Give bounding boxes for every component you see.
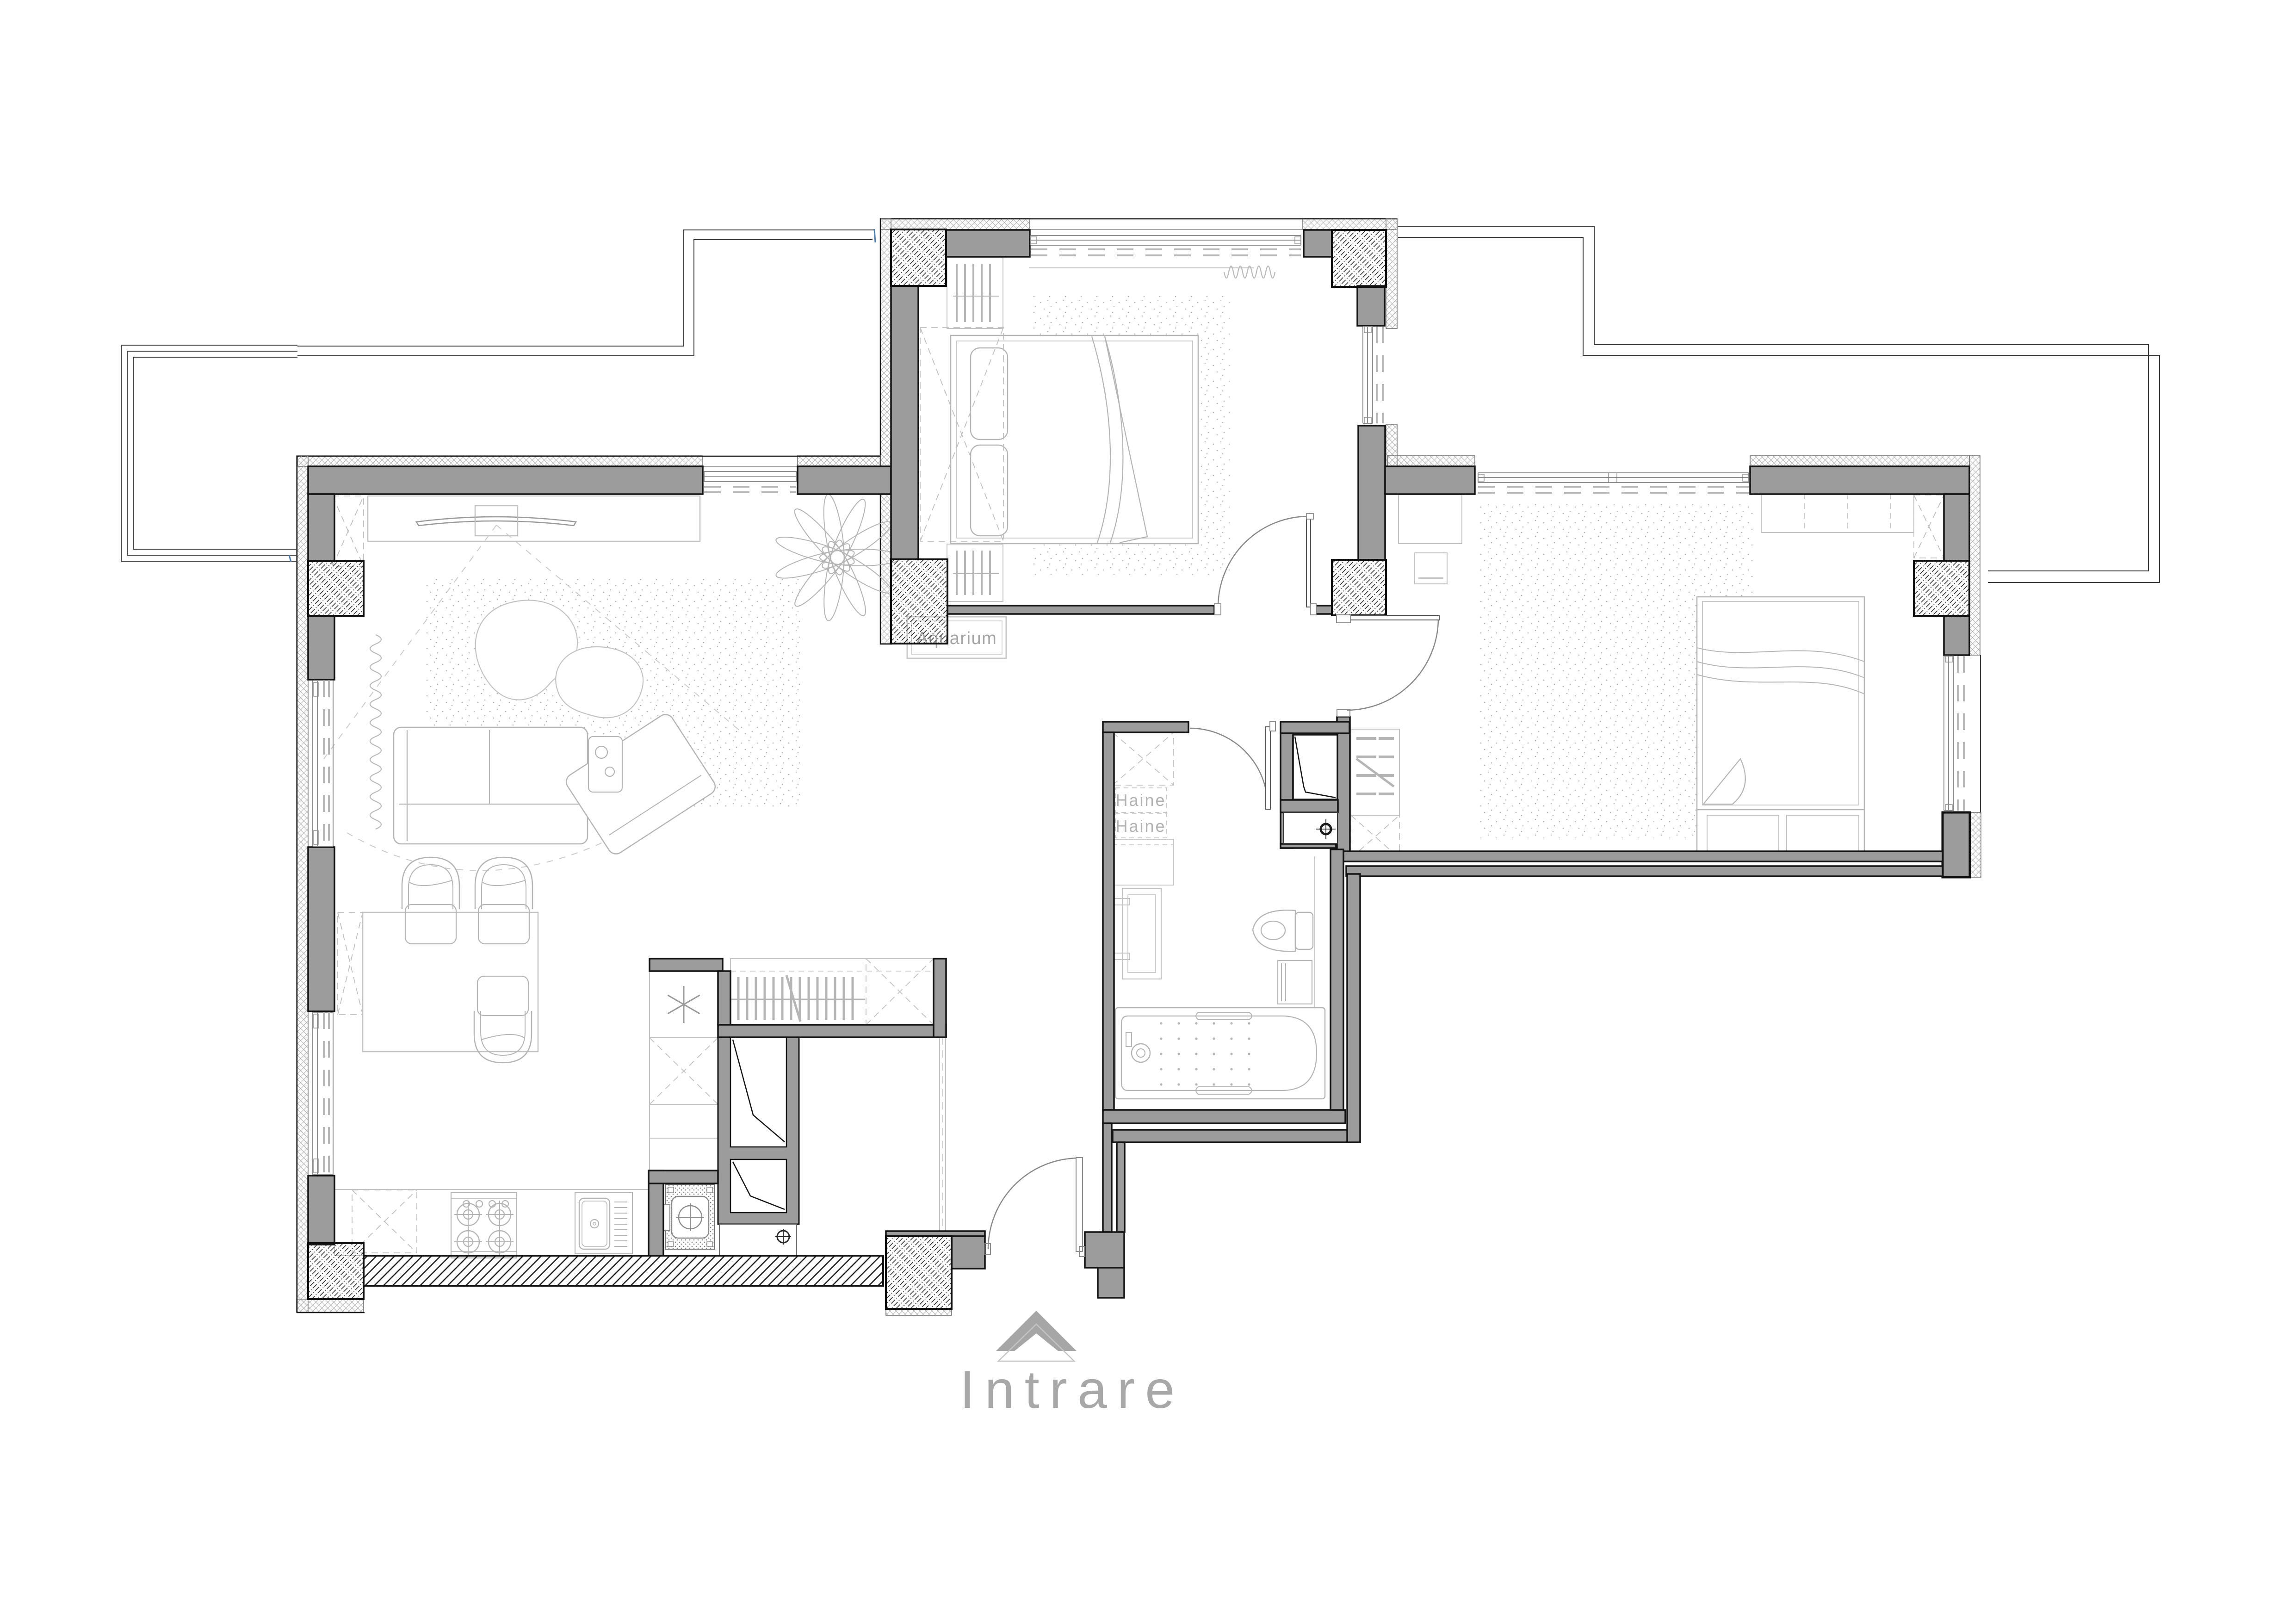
svg-text:Intrare: Intrare xyxy=(960,1360,1185,1419)
svg-text:Haine: Haine xyxy=(1115,791,1166,810)
svg-text:Haine: Haine xyxy=(1115,817,1166,836)
